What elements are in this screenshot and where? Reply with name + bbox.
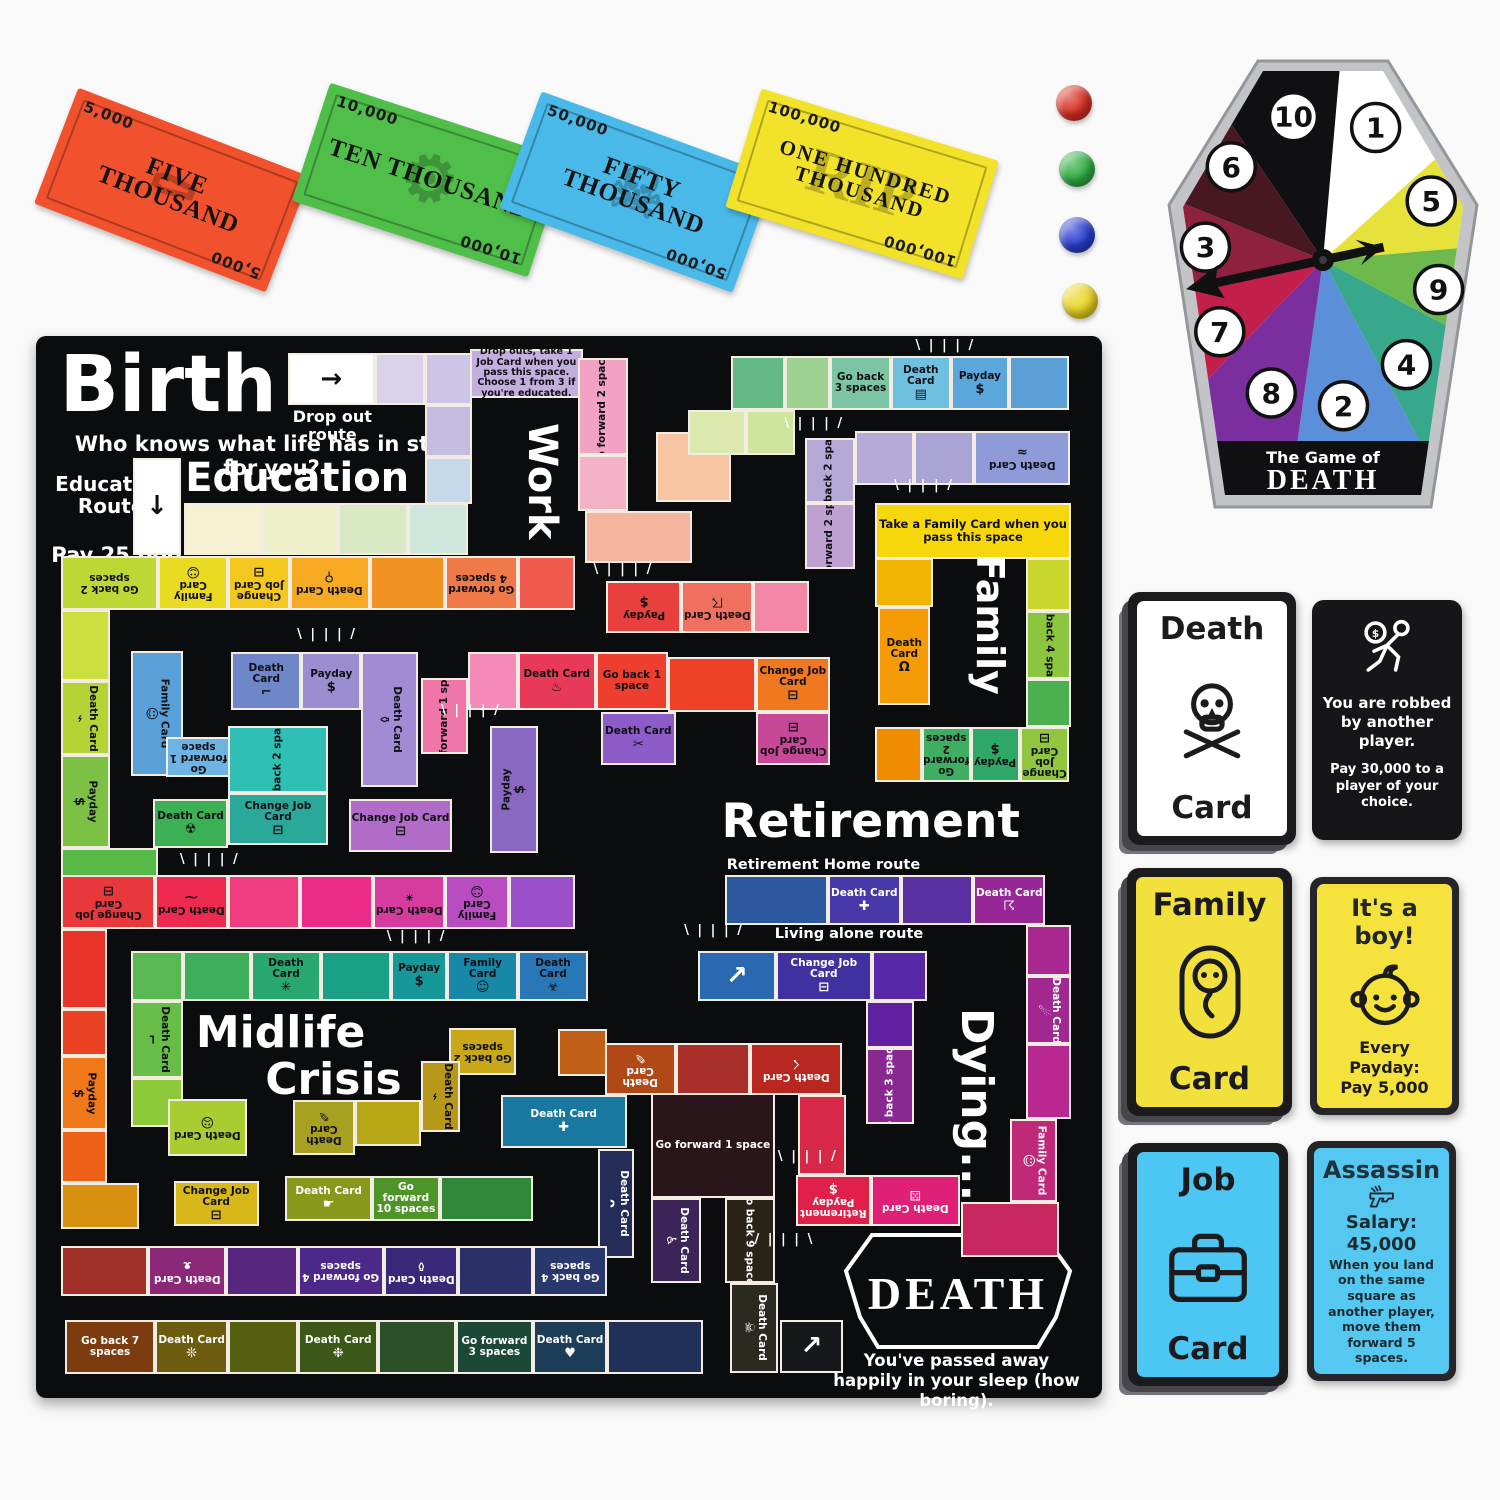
board-space: Death Card⌐ — [231, 652, 301, 709]
magnifier-icon: ⚲ — [325, 570, 335, 583]
wave-icon: ≈ — [1017, 445, 1028, 458]
space-label: Change Job Card — [1022, 745, 1067, 778]
board-space: → — [288, 353, 375, 405]
board-space: Death Card✚ — [828, 875, 900, 925]
grenade-icon: ❉ — [333, 1347, 344, 1360]
board-space — [458, 1246, 533, 1296]
board-space: Go forward 1 space — [651, 1093, 775, 1198]
board-space — [753, 581, 808, 633]
boy-card-title: It's a boy! — [1323, 894, 1446, 950]
board-space: Death Card☠ — [730, 1283, 778, 1372]
space-label: Go back 3 spaces — [885, 1048, 896, 1124]
space-label: Death Card — [523, 669, 590, 680]
space-label: Payday — [502, 768, 513, 810]
section-title-education: Education — [185, 455, 409, 501]
burst-marks: \ | | | / — [180, 852, 240, 867]
board-space — [425, 405, 472, 457]
scissors-icon: ✂ — [633, 738, 644, 751]
board-space — [425, 457, 472, 504]
board-space: Death Card⌁ — [421, 1061, 460, 1132]
board-space: Death Card✳ — [251, 951, 320, 1001]
lungs-icon: Ω — [899, 661, 910, 674]
spinner-number: 2 — [1334, 390, 1353, 423]
pistol-icon: ⌐ — [261, 686, 272, 699]
cactus-icon: ❊ — [186, 1347, 197, 1360]
board-space: Go back 4 spaces — [533, 1246, 608, 1296]
spinner-number: 7 — [1210, 316, 1229, 349]
board-space — [914, 431, 974, 485]
space-label: Death Card — [607, 1065, 673, 1087]
space-label: Retirement Payday — [798, 1196, 869, 1218]
burst-marks: \ | | | / — [915, 338, 975, 353]
space-label: Death Card — [530, 1109, 597, 1120]
running-thief-icon: $ — [1351, 616, 1423, 682]
space-label: Go back 1 space — [598, 670, 666, 692]
space-label: Death Card — [295, 1186, 362, 1197]
board-space: Go forward 4 spaces — [445, 556, 517, 610]
board-space: Payday$ — [391, 951, 447, 1001]
space-label: Go forward 2 spaces — [824, 503, 835, 569]
player-peg-blue — [1059, 217, 1095, 253]
board-space: Change Job Card⊟ — [228, 793, 328, 845]
game-board: Birth Who knows what life has in store f… — [36, 336, 1102, 1398]
board-space: Death Card☈ — [681, 581, 753, 633]
briefcase-icon: ⊟ — [103, 884, 114, 897]
death-subtitle: You've passed away happily in your sleep… — [831, 1351, 1082, 1410]
board-space — [408, 503, 468, 555]
space-label: Go back 4 spaces — [535, 1260, 606, 1282]
space-label: Payday — [959, 371, 1001, 382]
board-space: Death Card☇ — [750, 1043, 842, 1095]
board-space: Death Card≈ — [974, 431, 1070, 485]
job-deck-top-label: Job — [1180, 1162, 1235, 1198]
space-label: Payday — [398, 963, 440, 974]
falling-icon: ☇ — [792, 1057, 799, 1070]
board-space: Payday$ — [606, 581, 681, 633]
board-space — [668, 657, 755, 712]
board-space — [785, 356, 830, 410]
player-peg-red — [1056, 85, 1092, 121]
space-label: Payday — [974, 756, 1016, 767]
board-space: Go forward 2 spaces — [805, 503, 855, 569]
board-space — [61, 610, 110, 681]
board-space: Go back 2 spaces — [61, 556, 158, 610]
spinner-number: 1 — [1366, 112, 1385, 145]
board-space: Family Card☺ — [447, 951, 517, 1001]
space-label: Death Card — [684, 609, 751, 620]
swaddled-baby-icon: ☺ — [144, 707, 157, 721]
spinner-number: 3 — [1196, 231, 1215, 264]
money-bag-icon: $ — [73, 797, 86, 806]
family-deck-top-label: Family — [1152, 887, 1266, 923]
burst-marks: \ | | | / — [594, 562, 654, 577]
assassin-card[interactable]: Assassin Salary: 45,000 When you land on… — [1307, 1141, 1456, 1381]
spinner-brand: DEATH — [1267, 465, 1380, 496]
board-space: Go forward 2 spaces — [578, 358, 628, 455]
board-space: Payday$ — [490, 726, 538, 853]
space-label: Go forward 10 spaces — [374, 1182, 438, 1215]
board-space — [183, 951, 251, 1001]
goblet-icon: ⚱ — [377, 714, 390, 725]
space-label: Payday — [623, 609, 665, 620]
board-space: Death Card⁓ — [155, 875, 227, 928]
space-label: Death Card — [376, 904, 443, 915]
board-space: Change Job Card⊟ — [349, 799, 451, 852]
section-title-midlife-2: Crisis — [265, 1054, 402, 1105]
space-label: Death Card — [391, 687, 402, 754]
space-label: Death Card — [158, 1006, 169, 1073]
space-label: Death Card — [880, 638, 928, 660]
space-label: Death Card — [233, 663, 299, 685]
assassin-rule-text: When you land on the same square as anot… — [1320, 1257, 1443, 1366]
board-space — [509, 875, 575, 928]
robbery-card[interactable]: $ You are robbed by another player. Pay … — [1312, 600, 1462, 840]
biohazard-icon: ☣ — [547, 981, 559, 994]
board-space — [440, 1176, 533, 1221]
arrow-up-right-icon: ↗ — [726, 963, 748, 989]
arrow-right-icon: → — [320, 366, 342, 392]
space-label: Death Card — [989, 459, 1056, 470]
job-deck-bottom-label: Card — [1167, 1331, 1248, 1367]
money-bill-100000: RIP 100,000 ONE HUNDRED THOUSAND 100,000 — [725, 88, 998, 279]
board-space: Death Cardᴖ — [598, 1149, 634, 1257]
board-space: Death CardΩ — [878, 607, 930, 705]
pistol-icon — [1345, 1184, 1419, 1212]
space-label: Go forward 3 spaces — [458, 1336, 531, 1358]
burst-marks: \ | | | / — [441, 703, 501, 718]
spinner-number: 4 — [1397, 349, 1416, 382]
space-label: Go back 4 spaces — [1043, 611, 1054, 679]
board-space — [901, 875, 973, 925]
spinner-number: 5 — [1421, 185, 1440, 218]
board-space — [355, 1100, 421, 1147]
player-peg-yellow — [1062, 283, 1098, 319]
section-title-birth: Birth — [59, 340, 276, 430]
credit-card-icon: ▤ — [915, 388, 927, 401]
space-label: Death Card — [678, 1208, 689, 1275]
board-space: Death Card❊ — [155, 1320, 227, 1373]
burst-marks: / | | | \ — [754, 1232, 814, 1247]
death-deck-bottom-label: Card — [1171, 790, 1252, 826]
death-deck-top-label: Death — [1160, 611, 1265, 647]
spinner-number: 6 — [1222, 151, 1241, 184]
spinner-number: 9 — [1429, 274, 1448, 307]
board-space — [518, 556, 576, 610]
board-space — [961, 1202, 1059, 1257]
section-title-retirement: Retirement — [721, 794, 1019, 849]
board-space: Change Job Card⊟ — [756, 712, 831, 765]
board-space — [725, 875, 828, 925]
board-space — [1026, 925, 1071, 976]
money-bag-icon: $ — [975, 383, 984, 396]
space-label: Change Job Card — [176, 1186, 257, 1208]
skull-icon: ☠ — [741, 1322, 754, 1334]
space-label: Change Job Card — [778, 958, 870, 980]
space-label: Go forward 2 spaces — [923, 732, 969, 776]
cigarette-icon: ⁓ — [185, 890, 198, 903]
board-space: Change Job Card⊟ — [1020, 727, 1069, 782]
board-space: Death Card☣ — [518, 951, 588, 1001]
space-label: Go back 3 spaces — [832, 372, 889, 394]
board-space — [184, 503, 263, 555]
burst-marks: \ | | | / — [784, 416, 844, 431]
skull-crossbones-icon — [1166, 671, 1258, 767]
board-space: ↗ — [698, 951, 776, 1001]
robbery-card-pay-text: Pay 30,000 to a player of your choice. — [1322, 762, 1452, 811]
board-space: Death Card♥ — [533, 1320, 608, 1373]
space-label: Go forward 1 space — [168, 741, 229, 774]
board-space: Death Card☛ — [285, 1176, 371, 1221]
board-space — [61, 1130, 108, 1183]
board-space — [300, 875, 372, 928]
board-space: Go back 3 spaces — [866, 1048, 914, 1124]
swaddled-baby-icon: ☺ — [476, 981, 490, 994]
board-space: Death Card❉ — [298, 1320, 378, 1373]
space-label: Death Card — [158, 1335, 225, 1346]
section-title-midlife-1: Midlife — [196, 1007, 366, 1058]
space-label: Death Card — [831, 888, 898, 899]
board-space — [1026, 1044, 1071, 1118]
space-label: Family Card — [160, 579, 226, 601]
bone-icon: ⌁ — [428, 1093, 441, 1101]
board-space: Death Card☹ — [168, 1099, 247, 1156]
radiation-icon: ☢ — [185, 823, 197, 836]
board-space — [321, 951, 391, 1001]
board-space — [1026, 679, 1071, 727]
board-space — [585, 511, 692, 563]
board-space: Death Card✴ — [373, 875, 445, 928]
bone-icon: ⌁ — [73, 714, 86, 722]
board-space: Death Card♨ — [518, 652, 596, 709]
board-space — [61, 1009, 108, 1056]
space-label: Go back 2 spaces — [272, 726, 283, 793]
section-title-family: Family — [968, 555, 1012, 695]
money-bag-icon: $ — [327, 681, 336, 694]
briefcase-icon: ⊟ — [787, 720, 798, 733]
board-space: Go forward 4 spaces — [298, 1246, 383, 1296]
ghost-icon: ☹ — [201, 1115, 215, 1128]
money-bag-icon: $ — [639, 595, 648, 608]
section-title-work: Work — [519, 423, 565, 540]
board-space: Retirement Payday$ — [796, 1175, 871, 1226]
dice-icon: ⚄ — [910, 1188, 921, 1201]
board-space: Death Card⚱ — [384, 1246, 459, 1296]
arrow-up-right-icon: ↗ — [801, 1333, 823, 1359]
space-label: Death Card — [976, 888, 1043, 899]
board-space: Go back 7 spaces — [65, 1320, 156, 1373]
coffin-spinner[interactable]: The Game of DEATH 15942873610 — [1163, 55, 1483, 535]
living-alone-route-label: Living alone route — [775, 926, 924, 942]
board-space: Death Card▤ — [891, 356, 951, 410]
briefcase-icon: ⊟ — [787, 689, 798, 702]
board-space — [370, 556, 446, 610]
board-space: Death Card⌁ — [61, 681, 110, 755]
space-label: Death Card — [617, 1170, 628, 1237]
space-label: Payday — [310, 669, 352, 680]
firework-icon: ✴ — [404, 890, 415, 903]
space-label: Death Card — [882, 1202, 949, 1213]
dropout-note: Drop outs, take 1 Job Card when you pass… — [470, 349, 583, 398]
spinner-graphic: The Game of DEATH 15942873610 — [1163, 55, 1483, 535]
storm-icon: ☈ — [1003, 900, 1015, 913]
board-space: ↗ — [780, 1320, 843, 1372]
space-label: Death Card — [253, 958, 318, 980]
its-a-boy-card[interactable]: It's a boy! Every Payday: Pay 5,000 — [1310, 877, 1459, 1115]
briefcase-icon — [1160, 1223, 1256, 1307]
board-space: Death Card☈ — [973, 875, 1045, 925]
board-space: Go forward 2 spaces — [922, 727, 971, 782]
briefcase-icon: ⊟ — [253, 565, 264, 578]
space-label: Death Card — [174, 1129, 241, 1140]
bottle-icon: ⚱ — [415, 1259, 426, 1272]
burst-marks: \ | | | / — [297, 627, 357, 642]
space-label: Death Card — [295, 1123, 353, 1145]
space-label: Go forward 4 spaces — [447, 572, 515, 594]
space-label: Go forward 4 spaces — [300, 1260, 381, 1282]
pen-icon: ✎ — [318, 1109, 329, 1122]
board-space: ↓ — [133, 458, 181, 555]
space-label: Go back 2 spaces — [63, 572, 156, 594]
retirement-home-route-label: Retirement Home route — [727, 857, 920, 873]
board-space — [875, 727, 922, 782]
board-space — [226, 1246, 298, 1296]
swaddled-baby-icon — [1170, 942, 1250, 1042]
board-space — [61, 1246, 148, 1296]
plaster-icon: ✚ — [558, 1121, 569, 1134]
space-label: Go back 7 spaces — [67, 1336, 154, 1358]
board-space — [866, 1001, 914, 1048]
family-note: Take a Family Card when you pass this sp… — [875, 503, 1071, 559]
board-space — [263, 503, 338, 555]
wheelchair-icon: ♿ — [664, 1235, 677, 1247]
space-label: Family Card — [449, 958, 515, 980]
job-card-deck[interactable]: Job Card — [1128, 1143, 1288, 1386]
robbery-card-text: You are robbed by another player. — [1322, 694, 1452, 750]
board-space — [578, 455, 628, 511]
board-space — [875, 558, 933, 607]
family-card-deck[interactable]: Family Card — [1127, 868, 1292, 1116]
briefcase-icon: ⊟ — [818, 981, 829, 994]
board-space: Death Card✎ — [293, 1100, 355, 1155]
ambulance-icon: ✚ — [859, 900, 870, 913]
space-label: Death Card — [520, 958, 586, 980]
space-label: Change Job Card — [230, 801, 326, 823]
board-space: Death Card⚄ — [871, 1175, 961, 1226]
drop-out-route-label: Drop out route — [284, 408, 380, 443]
player-peg-green — [1059, 151, 1095, 187]
death-card-deck[interactable]: Death Card — [1128, 592, 1296, 845]
board-space — [425, 353, 472, 405]
needle-icon: ✎ — [635, 1051, 646, 1064]
board-space: Death Cardᴥ — [148, 1246, 226, 1296]
board-space — [558, 1029, 607, 1076]
board-space: Death Card⌐ — [131, 1001, 183, 1079]
space-label: Family Card — [1035, 1125, 1046, 1195]
board-space: Death Card⚱ — [361, 652, 417, 787]
dinosaur-icon: ᴥ — [183, 1259, 191, 1272]
board-space: Go back 2 spaces — [228, 726, 328, 793]
swaddled-baby-icon: ☺ — [186, 565, 200, 578]
storm-icon: ☈ — [711, 595, 723, 608]
board-space — [872, 951, 927, 1001]
space-label: Death Card — [157, 811, 224, 822]
space-label: Go forward 1 space — [656, 1140, 771, 1151]
fire-icon: ♨ — [551, 681, 563, 694]
swaddled-baby-icon: ☺ — [1021, 1153, 1034, 1167]
space-label: Payday — [87, 781, 98, 823]
board-space — [1026, 558, 1071, 611]
space-label: Change Job Card — [352, 813, 450, 824]
svg-text:$: $ — [1372, 627, 1380, 640]
space-label: Death Card — [537, 1335, 604, 1346]
tooth-icon: ᴖ — [603, 1199, 616, 1208]
swaddled-baby-icon: ☺ — [471, 884, 485, 897]
board-space — [1009, 356, 1069, 410]
money-bill-5000: ⚰ 5,000 FIVE THOUSAND 5,000 — [34, 88, 310, 293]
space-label: Death Card — [893, 365, 949, 387]
arrow-down-icon: ↓ — [146, 493, 168, 519]
space-label: Go back 2 spaces — [451, 1041, 514, 1063]
space-label: Death Card — [296, 584, 363, 595]
board-space: Death Card☄ — [1026, 976, 1071, 1044]
board-space — [378, 1320, 456, 1373]
board-space: Go back 2 spaces — [805, 438, 855, 503]
space-label: Death Card — [158, 904, 225, 915]
board-space — [228, 1320, 298, 1373]
spinner-number: 10 — [1274, 101, 1313, 134]
space-label: Change Job Card — [758, 666, 829, 688]
board-space — [228, 875, 300, 928]
board-space: Go back 3 spaces — [830, 356, 891, 410]
bomb-icon: ☄ — [1036, 1005, 1049, 1017]
space-label: Death Card — [755, 1295, 766, 1362]
money-bag-icon: $ — [415, 975, 424, 988]
board-space: Family Card☺ — [158, 556, 228, 610]
board-space: Change Job Card⊟ — [228, 556, 290, 610]
space-label: Go forward 2 spaces — [597, 358, 608, 455]
money-bag-icon: $ — [991, 742, 1000, 755]
pistol-icon: ⌐ — [144, 1034, 157, 1045]
briefcase-icon: ⊟ — [1039, 731, 1050, 744]
space-label: Go back 2 spaces — [824, 438, 835, 503]
board-space — [61, 929, 108, 1010]
space-label: Death Card — [388, 1273, 455, 1284]
board-space: Family Card☺ — [445, 875, 509, 928]
board-space: Payday$ — [61, 755, 110, 847]
money-bag-icon: $ — [514, 785, 527, 794]
board-space: Go forward 1 space — [166, 737, 231, 776]
board-space — [131, 951, 183, 1001]
board-space: Go back 1 space — [596, 652, 668, 709]
board-space: Change Job Card⊟ — [776, 951, 872, 1001]
boy-card-pay-amount: Pay 5,000 — [1323, 1078, 1446, 1098]
money-bag-icon: $ — [829, 1182, 838, 1195]
burst-marks: \ | | | / — [387, 929, 447, 944]
board-space — [61, 1183, 140, 1229]
board-space: Family Card☺ — [1010, 1119, 1057, 1202]
briefcase-icon: ⊟ — [395, 825, 406, 838]
money-bag-icon: $ — [71, 1089, 84, 1098]
board-space: Payday$ — [951, 356, 1010, 410]
board-space: Death Card⚲ — [290, 556, 370, 610]
space-label: Change Job Card — [758, 734, 829, 756]
space-label: Change Job Card — [63, 898, 154, 920]
burst-marks: \ | | | / — [684, 923, 744, 938]
board-space — [375, 353, 425, 405]
board-space: Death Card✎ — [605, 1043, 675, 1095]
board-space — [607, 1320, 703, 1373]
space-label: Payday — [85, 1072, 96, 1114]
